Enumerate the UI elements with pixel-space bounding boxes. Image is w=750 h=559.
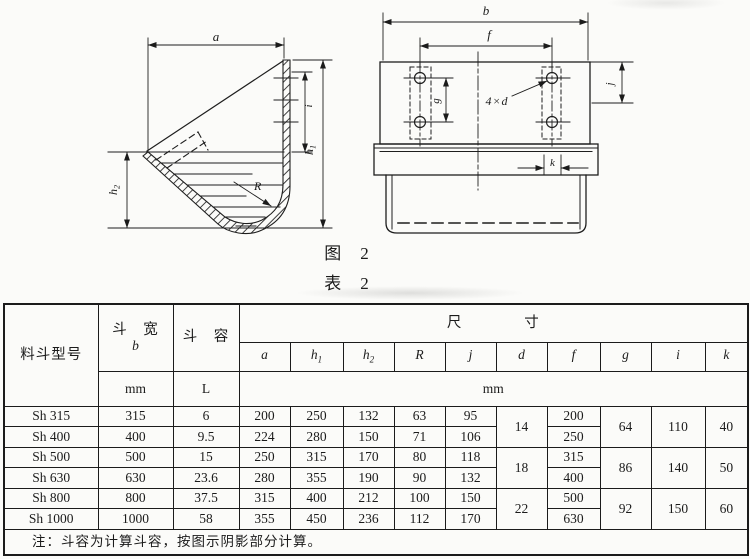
cell-j: 95 [445, 406, 496, 427]
cell-R: 63 [394, 406, 445, 427]
cell-model: Sh 630 [4, 468, 98, 489]
cell-g: 86 [600, 447, 651, 488]
cell-i: 110 [651, 406, 705, 447]
cell-k: 60 [705, 488, 748, 529]
cell-j: 170 [445, 509, 496, 530]
cell-j: 150 [445, 488, 496, 509]
header-sym-R: R [394, 342, 445, 371]
cell-model: Sh 1000 [4, 509, 98, 530]
dim-g-label: g [430, 98, 442, 104]
cell-k: 40 [705, 406, 748, 447]
cell-f: 200 [547, 406, 600, 427]
cell-h1: 355 [290, 468, 343, 489]
cell-vol: 6 [173, 406, 239, 427]
scanned-standard-page: a i h1 h2 R [0, 0, 750, 559]
dim-b [383, 13, 588, 60]
holes-callout-label: 4×d [485, 94, 508, 108]
cell-d: 22 [496, 488, 547, 529]
header-row-3: mm L mm [4, 371, 748, 406]
cell-h1: 450 [290, 509, 343, 530]
cell-j: 106 [445, 427, 496, 448]
cell-h1: 250 [290, 406, 343, 427]
dim-i-label: i [303, 104, 315, 107]
cell-i: 150 [651, 488, 705, 529]
cell-R: 80 [394, 447, 445, 468]
cell-model: Sh 500 [4, 447, 98, 468]
cell-f: 500 [547, 488, 600, 509]
table-row: Sh 800 800 37.5 315 400 212 100 150 22 5… [4, 488, 748, 509]
cell-f: 630 [547, 509, 600, 530]
cell-vol: 23.6 [173, 468, 239, 489]
cell-a: 224 [239, 427, 290, 448]
cell-d: 18 [496, 447, 547, 488]
dim-R-leader [234, 182, 271, 206]
note-row: 注：斗容为计算斗容，按图示阴影部分计算。 [4, 529, 748, 555]
cell-h1: 315 [290, 447, 343, 468]
dimension-table: 料斗型号 斗 宽 b 斗 容 尺 寸 a h1 h2 R j d f g i k [3, 303, 749, 556]
header-dimensions: 尺 寸 [239, 304, 748, 342]
header-bucket-volume: 斗 容 [173, 304, 239, 371]
header-sym-f: f [547, 342, 600, 371]
header-sym-h1: h1 [290, 342, 343, 371]
rim-band [374, 144, 598, 175]
cell-h2: 236 [343, 509, 394, 530]
cell-h1: 280 [290, 427, 343, 448]
table-row: Sh 315 315 6 200 250 132 63 95 14 200 64… [4, 406, 748, 427]
cell-model: Sh 400 [4, 427, 98, 448]
cell-model: Sh 800 [4, 488, 98, 509]
header-bucket-width-symbol: b [132, 338, 139, 353]
cell-k: 50 [705, 447, 748, 488]
cell-b: 500 [98, 447, 173, 468]
header-sym-h2: h2 [343, 342, 394, 371]
table-caption: 表 2 [287, 269, 407, 294]
dim-h1 [108, 60, 332, 228]
cell-a: 280 [239, 468, 290, 489]
cell-R: 71 [394, 427, 445, 448]
figure-caption: 图 2 [287, 239, 407, 264]
header-volume-unit: L [173, 371, 239, 406]
cell-h1: 400 [290, 488, 343, 509]
cell-a: 250 [239, 447, 290, 468]
header-sym-g: g [600, 342, 651, 371]
header-sym-d: d [496, 342, 547, 371]
dim-j-label: j [604, 82, 616, 87]
cell-vol: 37.5 [173, 488, 239, 509]
cell-R: 90 [394, 468, 445, 489]
header-sym-j: j [445, 342, 496, 371]
header-bucket-width: 斗 宽 b [98, 304, 173, 371]
dim-R-label: R [253, 179, 262, 193]
header-bucket-width-title: 斗 宽 [112, 322, 159, 338]
cell-vol: 9.5 [173, 427, 239, 448]
header-sym-i: i [651, 342, 705, 371]
cell-a: 200 [239, 406, 290, 427]
bucket-body-rear [386, 175, 586, 233]
cell-j: 118 [445, 447, 496, 468]
header-model: 料斗型号 [4, 304, 98, 406]
cell-b: 800 [98, 488, 173, 509]
cell-h2: 150 [343, 427, 394, 448]
dim-h1-label: h1 [302, 145, 318, 155]
cell-f: 400 [547, 468, 600, 489]
cell-h2: 132 [343, 406, 394, 427]
bucket-side-view: a i h1 h2 R [106, 29, 332, 234]
table-note: 注：斗容为计算斗容，按图示阴影部分计算。 [4, 529, 748, 555]
dim-a-label: a [213, 29, 220, 44]
cell-vol: 15 [173, 447, 239, 468]
cell-R: 100 [394, 488, 445, 509]
cell-b: 315 [98, 406, 173, 427]
bucket-opening-edge [147, 61, 283, 151]
dim-k-label: k [550, 157, 556, 169]
cell-g: 92 [600, 488, 651, 529]
cell-a: 355 [239, 509, 290, 530]
figure-2-drawing: a i h1 h2 R [0, 0, 750, 240]
dim-h2-label: h2 [106, 185, 122, 195]
cell-d: 14 [496, 406, 547, 447]
header-sym-k: k [705, 342, 748, 371]
cell-b: 400 [98, 427, 173, 448]
cell-f: 315 [547, 447, 600, 468]
cell-i: 140 [651, 447, 705, 488]
dim-a [148, 38, 284, 151]
cell-b: 1000 [98, 509, 173, 530]
cell-j: 132 [445, 468, 496, 489]
dim-f-label: f [487, 27, 493, 42]
header-row-1: 料斗型号 斗 宽 b 斗 容 尺 寸 [4, 304, 748, 342]
cell-h2: 212 [343, 488, 394, 509]
header-sym-a: a [239, 342, 290, 371]
cell-model: Sh 315 [4, 406, 98, 427]
cell-vol: 58 [173, 509, 239, 530]
bucket-rear-view: b f g j 4×d [374, 3, 633, 233]
cell-b: 630 [98, 468, 173, 489]
header-width-unit: mm [98, 371, 173, 406]
cell-f: 250 [547, 427, 600, 448]
cell-R: 112 [394, 509, 445, 530]
header-dims-unit: mm [239, 371, 748, 406]
dim-i [292, 72, 312, 152]
cell-a: 315 [239, 488, 290, 509]
table-row: Sh 500 500 15 250 315 170 80 118 18 315 … [4, 447, 748, 468]
dim-b-label: b [483, 3, 490, 18]
cell-h2: 190 [343, 468, 394, 489]
cell-g: 64 [600, 406, 651, 447]
cell-h2: 170 [343, 447, 394, 468]
bucket-shell-section [143, 60, 290, 234]
